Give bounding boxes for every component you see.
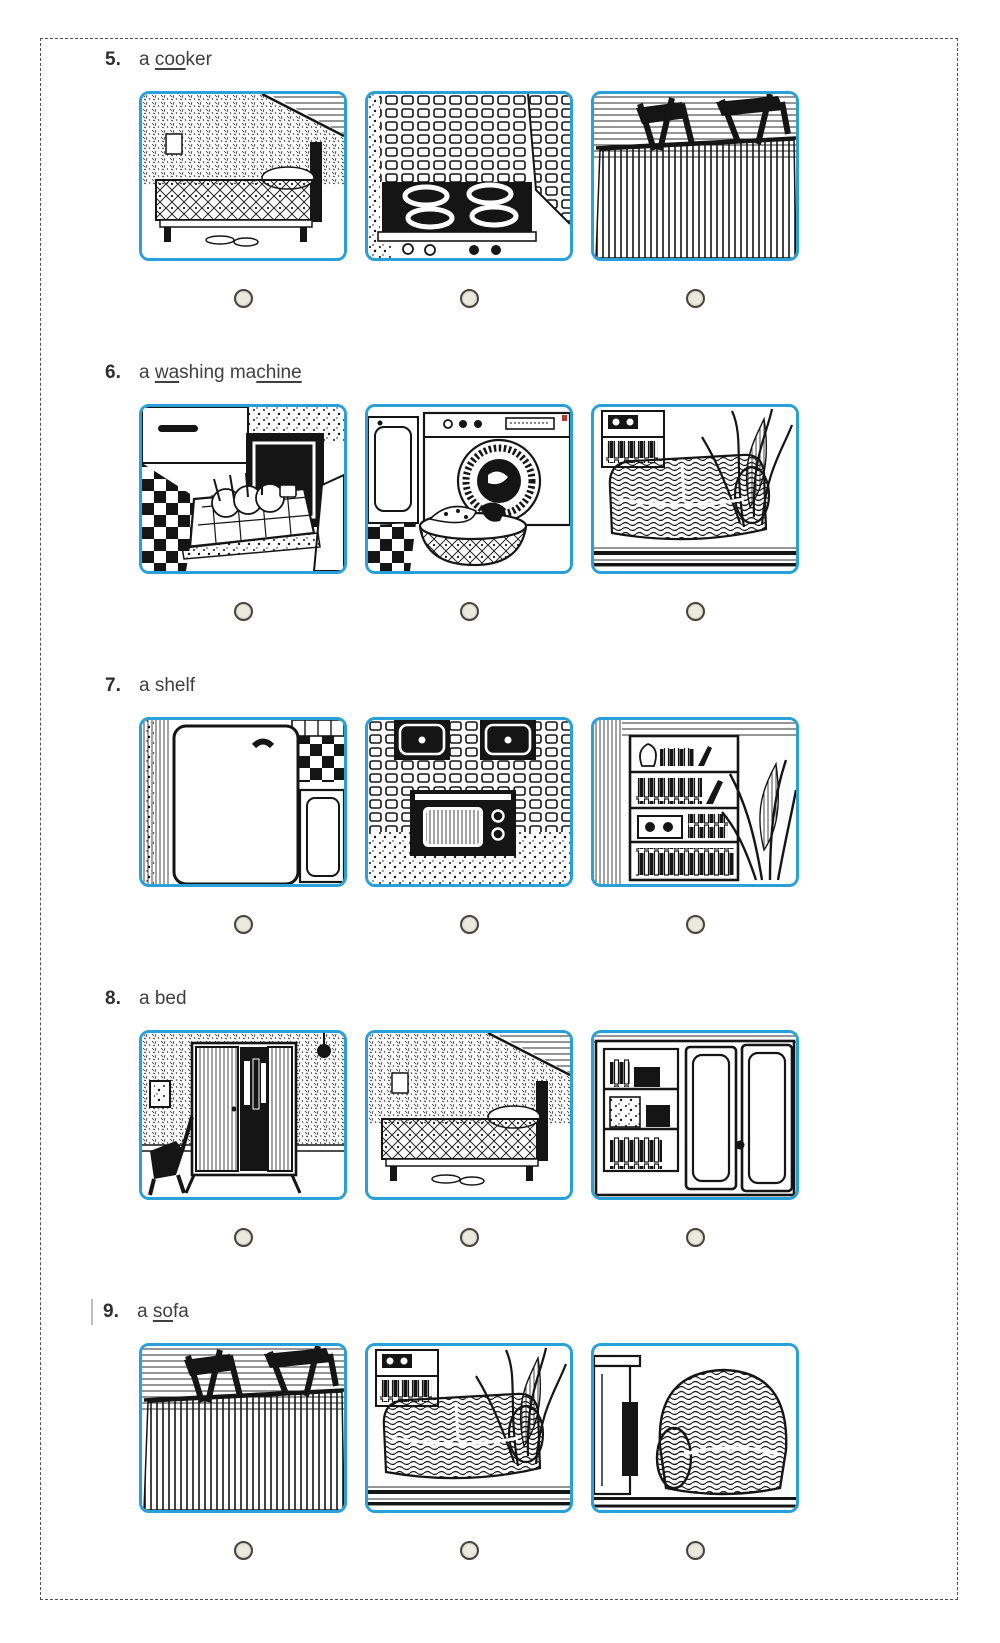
question-block-5: 5. a cooker	[41, 47, 957, 308]
option-image-bookshelf[interactable]	[591, 717, 799, 887]
radio-cell	[365, 602, 573, 621]
option-radios	[139, 1228, 957, 1247]
label-part: chine	[256, 362, 301, 383]
question-head: 9. a sofa	[41, 1299, 957, 1325]
option-radio-q8-2[interactable]	[460, 1228, 479, 1247]
table-illustration	[594, 94, 796, 258]
radio-cell	[591, 1541, 799, 1560]
question-label: a sofa	[137, 1299, 189, 1325]
bookshelf-illustration	[594, 720, 796, 884]
bed-illustration	[368, 1033, 570, 1197]
option-images	[139, 404, 957, 574]
radio-cell	[365, 289, 573, 308]
question-head: 5. a cooker	[41, 47, 957, 73]
question-number: 5.	[105, 47, 139, 73]
option-radio-q7-2[interactable]	[460, 915, 479, 934]
oven-illustration	[368, 720, 570, 884]
radio-cell	[365, 1228, 573, 1247]
option-radio-q6-3[interactable]	[686, 602, 705, 621]
option-radios	[139, 915, 957, 934]
sofa-illustration	[594, 407, 796, 571]
option-image-armchair[interactable]	[591, 1343, 799, 1513]
question-block-6: 6. a washing machine	[41, 360, 957, 621]
fridge-illustration	[142, 720, 344, 884]
worksheet-frame: 5. a cooker 6. a washing machine	[40, 38, 958, 1600]
label-part: a bed	[139, 988, 187, 1009]
question-label: a washing machine	[139, 360, 302, 386]
option-image-dining-table[interactable]	[139, 1343, 347, 1513]
label-part: a	[137, 1301, 153, 1322]
question-block-7: 7. a shelf	[41, 673, 957, 934]
option-image-cooker-hob[interactable]	[365, 91, 573, 261]
caret-artifact	[91, 1299, 93, 1325]
radio-cell	[139, 289, 347, 308]
question-number: 7.	[105, 673, 139, 699]
radio-cell	[591, 915, 799, 934]
label-part: ker	[186, 49, 212, 70]
question-number: 8.	[105, 986, 139, 1012]
option-image-cupboard[interactable]	[591, 1030, 799, 1200]
radio-cell	[139, 602, 347, 621]
armchair-illustration	[594, 1346, 796, 1510]
question-number: 9.	[103, 1299, 137, 1325]
dishwasher-illustration	[142, 407, 344, 571]
label-part: a	[139, 362, 155, 383]
label-part: coo	[155, 49, 186, 70]
option-images	[139, 1343, 957, 1513]
question-block-8: 8. a bed	[41, 986, 957, 1247]
label-part: a	[139, 49, 155, 70]
label-part: wa	[155, 362, 179, 383]
option-image-dishwasher[interactable]	[139, 404, 347, 574]
option-radios	[139, 602, 957, 621]
table-illustration	[142, 1346, 344, 1510]
radio-cell	[591, 289, 799, 308]
option-radio-q7-1[interactable]	[234, 915, 253, 934]
option-radio-q5-2[interactable]	[460, 289, 479, 308]
option-radio-q6-1[interactable]	[234, 602, 253, 621]
option-radio-q6-2[interactable]	[460, 602, 479, 621]
sofa-illustration	[368, 1346, 570, 1510]
option-images	[139, 717, 957, 887]
radio-cell	[591, 602, 799, 621]
option-image-sofa-plant[interactable]	[365, 1343, 573, 1513]
questions: 5. a cooker 6. a washing machine	[41, 47, 957, 1560]
label-part: so	[153, 1301, 173, 1322]
option-image-oven[interactable]	[365, 717, 573, 887]
option-image-dining-table[interactable]	[591, 91, 799, 261]
question-block-9: 9. a sofa	[41, 1299, 957, 1560]
radio-cell	[365, 915, 573, 934]
question-label: a shelf	[139, 673, 195, 699]
option-image-bedroom-bed[interactable]	[365, 1030, 573, 1200]
option-radio-q5-3[interactable]	[686, 289, 705, 308]
option-radios	[139, 1541, 957, 1560]
option-images	[139, 1030, 957, 1200]
option-image-fridge[interactable]	[139, 717, 347, 887]
wardrobe-illustration	[142, 1033, 344, 1197]
option-radio-q8-3[interactable]	[686, 1228, 705, 1247]
question-label: a bed	[139, 986, 187, 1012]
radio-cell	[365, 1541, 573, 1560]
radio-cell	[139, 915, 347, 934]
label-part: fa	[173, 1301, 189, 1322]
option-radio-q7-3[interactable]	[686, 915, 705, 934]
radio-cell	[139, 1228, 347, 1247]
option-image-washing-machine[interactable]	[365, 404, 573, 574]
question-label: a cooker	[139, 47, 212, 73]
question-head: 6. a washing machine	[41, 360, 957, 386]
question-head: 8. a bed	[41, 986, 957, 1012]
option-image-wardrobe[interactable]	[139, 1030, 347, 1200]
option-radios	[139, 289, 957, 308]
question-number: 6.	[105, 360, 139, 386]
radio-cell	[139, 1541, 347, 1560]
option-images	[139, 91, 957, 261]
option-radio-q5-1[interactable]	[234, 289, 253, 308]
option-radio-q9-2[interactable]	[460, 1541, 479, 1560]
option-image-sofa-plant[interactable]	[591, 404, 799, 574]
cupboard-illustration	[594, 1033, 796, 1197]
bed-illustration	[142, 94, 344, 258]
question-head: 7. a shelf	[41, 673, 957, 699]
option-image-bedroom-bed[interactable]	[139, 91, 347, 261]
label-part: shing ma	[179, 362, 256, 383]
label-part: a shelf	[139, 675, 195, 696]
option-radio-q9-1[interactable]	[234, 1541, 253, 1560]
washing-machine-illustration	[368, 407, 570, 571]
option-radio-q8-1[interactable]	[234, 1228, 253, 1247]
radio-cell	[591, 1228, 799, 1247]
option-radio-q9-3[interactable]	[686, 1541, 705, 1560]
cooker-illustration	[368, 94, 570, 258]
